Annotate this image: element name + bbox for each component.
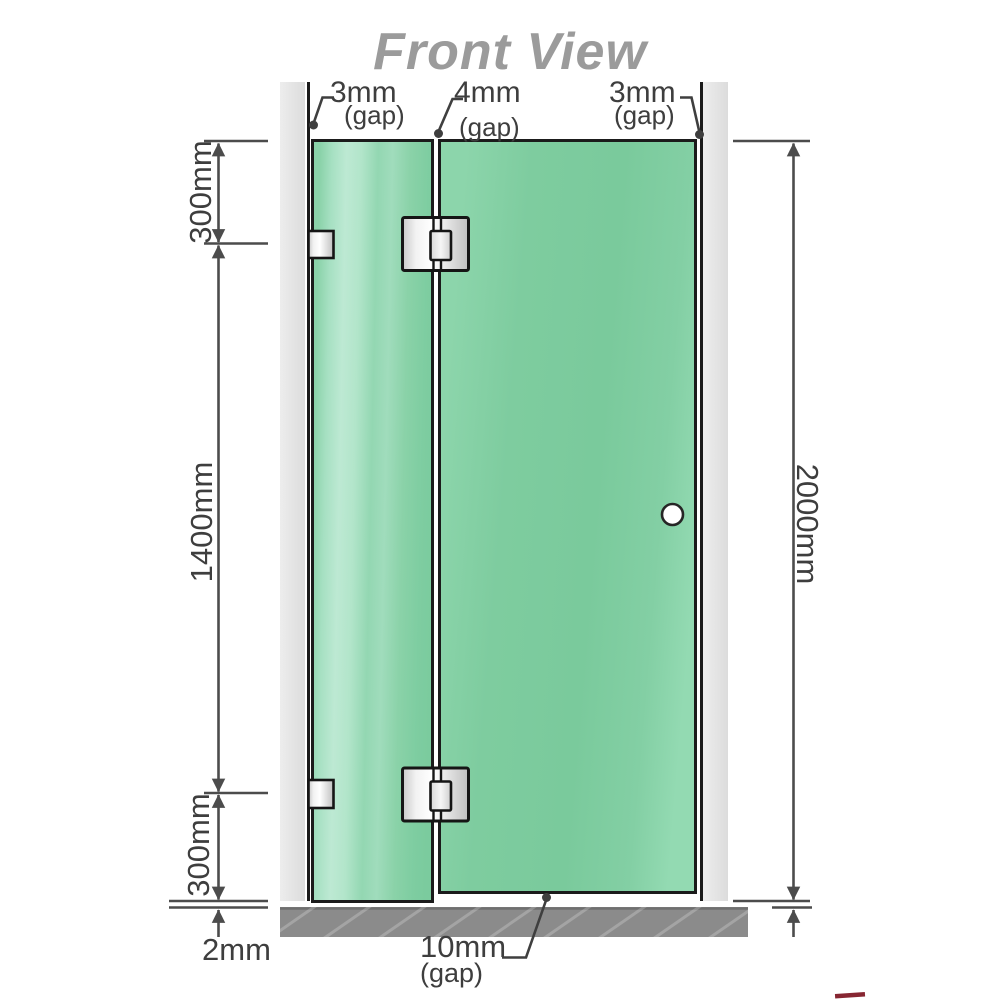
gap-unit-top-middle: (gap): [459, 114, 520, 140]
hinge-bottom-icon: [403, 768, 469, 821]
door-knob-icon: [662, 504, 683, 525]
gap-label-top-middle: 4mm: [454, 78, 521, 108]
gap-bottom-value: 10mm: [420, 933, 506, 960]
left-wall: [280, 82, 305, 901]
floor: [265, 903, 760, 941]
gap-unit-top-right: (gap): [614, 102, 675, 128]
door-glass-panel: [440, 141, 696, 893]
dimension-label-1400: 1400mm: [184, 447, 220, 597]
wall-bracket-top-icon: [309, 231, 334, 258]
hinge-top-icon: [403, 218, 469, 271]
page-title: Front View: [345, 22, 675, 82]
gap-label-bottom: 10mm (gap): [420, 933, 506, 986]
gap-unit-top-left: (gap): [344, 102, 405, 128]
wall-bracket-bottom-icon: [309, 780, 334, 808]
front-view-diagram: Front View 3mm (gap) 4mm (gap) 3mm (gap)…: [0, 0, 1000, 1000]
right-wall: [703, 82, 728, 901]
diagram-canvas: [0, 0, 1000, 1000]
dimension-label-2000: 2000mm: [789, 444, 825, 604]
logo-fragment: [835, 992, 865, 999]
dimension-label-300-bottom: 300mm: [181, 785, 217, 905]
dimension-label-300-top: 300mm: [183, 132, 219, 252]
dimension-label-2mm: 2mm: [202, 934, 271, 965]
